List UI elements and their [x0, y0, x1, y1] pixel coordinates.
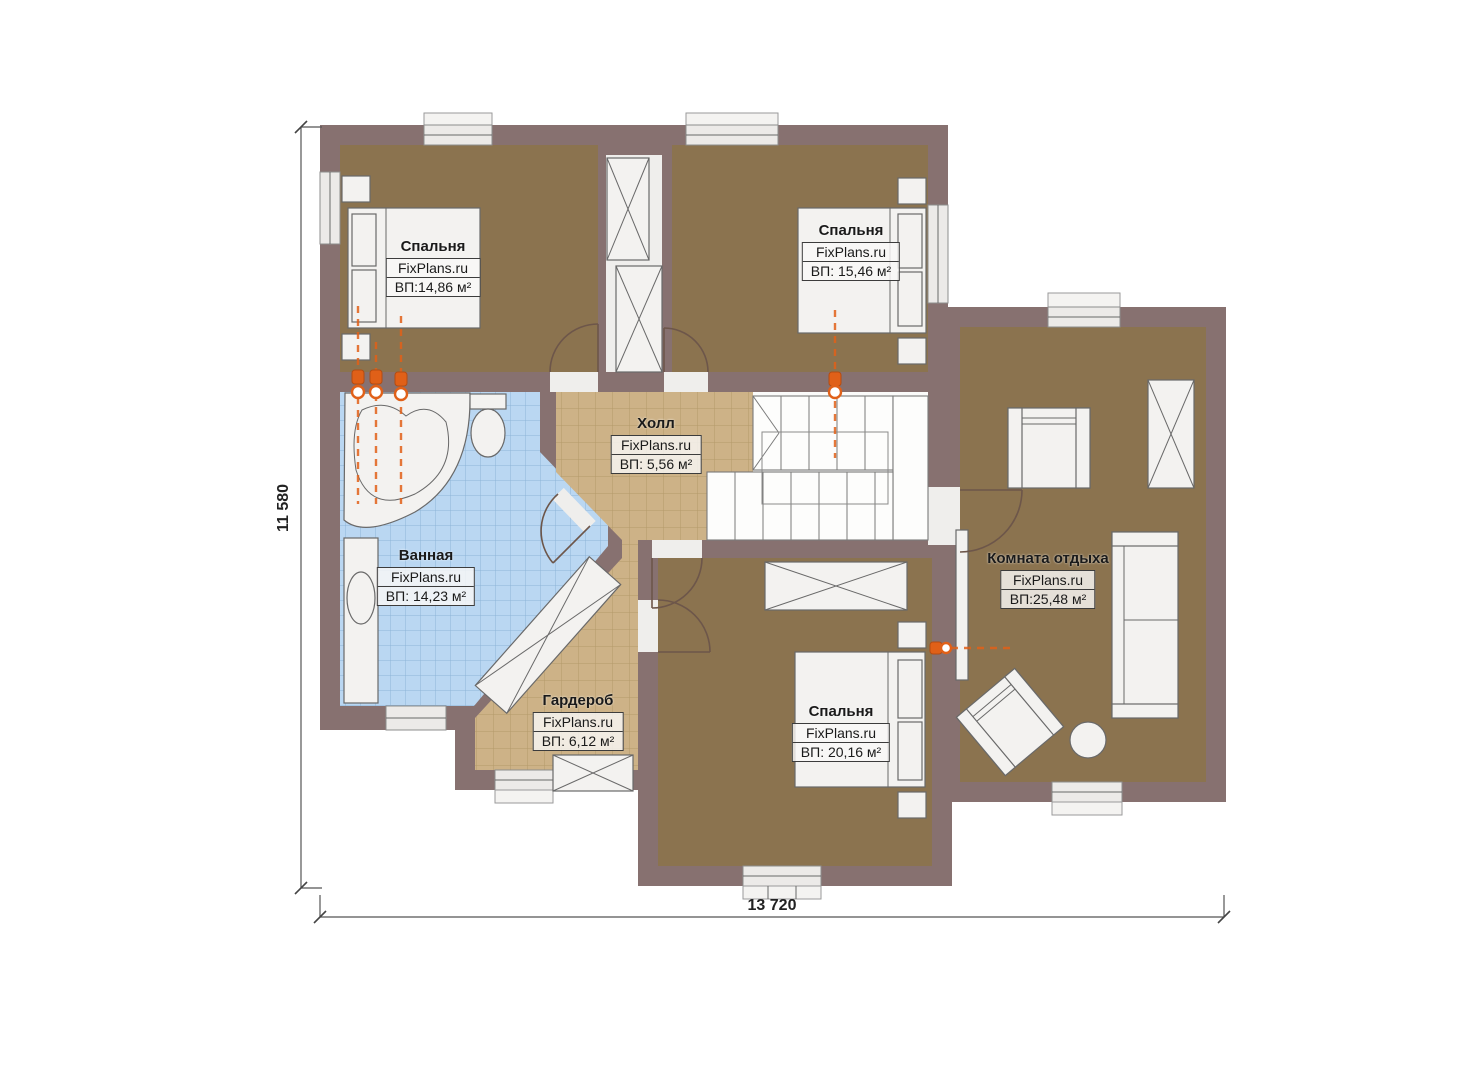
room-name: Комната отдыха — [987, 550, 1108, 567]
room-info-box: FixPlans.ru ВП: 20,16 м² — [792, 723, 890, 762]
floor-plan-drawing: 11 580 13 720 — [0, 0, 1474, 1080]
room-label-bedroom-1: Спальня FixPlans.ru ВП:14,86 м² — [386, 238, 481, 297]
bathroom-counter-sink — [344, 538, 378, 703]
room-area: ВП: 6,12 м² — [534, 732, 623, 750]
room-name: Спальня — [802, 222, 900, 239]
room-info-box: FixPlans.ru ВП: 14,23 м² — [377, 567, 475, 606]
room-info-box: FixPlans.ru ВП: 6,12 м² — [533, 712, 624, 751]
bedroom-3-closet — [765, 562, 907, 610]
watermark: FixPlans.ru — [612, 436, 701, 455]
room-area: ВП: 14,23 м² — [378, 587, 474, 605]
room-area: ВП:14,86 м² — [387, 278, 480, 296]
room-label-bedroom-2: Спальня FixPlans.ru ВП: 15,46 м² — [802, 222, 900, 281]
room-area: ВП:25,48 м² — [1002, 590, 1095, 608]
room-label-wardrobe: Гардероб FixPlans.ru ВП: 6,12 м² — [533, 692, 624, 751]
watermark: FixPlans.ru — [534, 713, 623, 732]
room-info-box: FixPlans.ru ВП: 5,56 м² — [611, 435, 702, 474]
room-label-lounge: Комната отдыха FixPlans.ru ВП:25,48 м² — [987, 550, 1108, 609]
watermark: FixPlans.ru — [387, 259, 480, 278]
room-label-hall: Холл FixPlans.ru ВП: 5,56 м² — [611, 415, 702, 474]
watermark: FixPlans.ru — [793, 724, 889, 743]
room-name: Гардероб — [533, 692, 624, 709]
room-area: ВП: 5,56 м² — [612, 455, 701, 473]
dimension-height-label: 11 580 — [275, 484, 292, 532]
dimension-height: 11 580 — [275, 121, 322, 894]
lounge-closet — [1148, 380, 1194, 488]
room-info-box: FixPlans.ru ВП:14,86 м² — [386, 258, 481, 297]
toilet — [470, 394, 506, 457]
watermark: FixPlans.ru — [378, 568, 474, 587]
round-table — [1070, 722, 1106, 758]
dimension-width-label: 13 720 — [748, 897, 797, 914]
watermark: FixPlans.ru — [803, 243, 899, 262]
room-name: Спальня — [386, 238, 481, 255]
room-area: ВП: 15,46 м² — [803, 262, 899, 280]
room-info-box: FixPlans.ru ВП:25,48 м² — [1001, 570, 1096, 609]
armchair-top — [1008, 408, 1090, 488]
room-label-bathroom: Ванная FixPlans.ru ВП: 14,23 м² — [377, 547, 475, 606]
dimension-width: 13 720 — [314, 895, 1230, 923]
sofa — [1112, 532, 1178, 718]
room-name: Ванная — [377, 547, 475, 564]
room-info-box: FixPlans.ru ВП: 15,46 м² — [802, 242, 900, 281]
watermark: FixPlans.ru — [1002, 571, 1095, 590]
floor-plan: 11 580 13 720 Спальня FixPlans.ru ВП:14,… — [0, 0, 1474, 1080]
room-area: ВП: 20,16 м² — [793, 743, 889, 761]
room-label-bedroom-3: Спальня FixPlans.ru ВП: 20,16 м² — [792, 703, 890, 762]
room-name: Холл — [611, 415, 702, 432]
room-name: Спальня — [792, 703, 890, 720]
wardrobe-closet — [553, 755, 633, 791]
